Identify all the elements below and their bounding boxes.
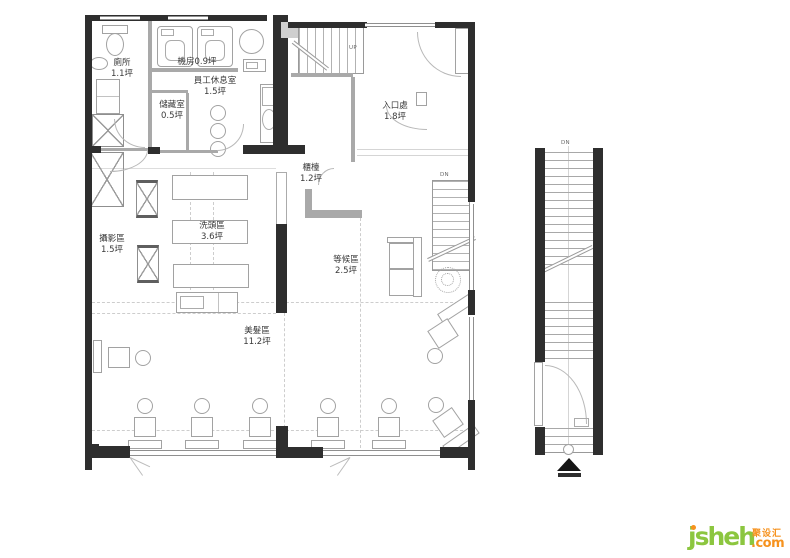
water-heater bbox=[239, 29, 264, 54]
wall-left bbox=[85, 15, 92, 470]
window bbox=[168, 16, 208, 20]
wall-right bbox=[468, 22, 475, 202]
reception-counter-wall bbox=[305, 210, 362, 218]
room-label-shampoo-area: 洗頭區 3.6坪 bbox=[199, 221, 225, 244]
shampoo-bed bbox=[172, 175, 248, 200]
mirror-counter bbox=[185, 440, 219, 449]
room-area: 3.6坪 bbox=[199, 232, 225, 243]
room-area: 0.5坪 bbox=[159, 111, 185, 122]
styling-chair bbox=[249, 417, 271, 437]
room-area: 1.5坪 bbox=[194, 87, 237, 98]
room-name: 入口處 bbox=[382, 101, 408, 112]
wall-right bbox=[468, 290, 475, 315]
room-label-waiting-area: 等候區 2.5坪 bbox=[333, 255, 359, 278]
mirror-counter bbox=[243, 440, 277, 449]
island-cabinet-line bbox=[218, 293, 219, 312]
room-label-machine-room: 機房0.9坪 bbox=[177, 57, 216, 68]
styling-chair bbox=[427, 318, 459, 349]
wall-segment bbox=[148, 15, 152, 148]
electrical-box-detail bbox=[246, 62, 258, 69]
styling-stool bbox=[194, 398, 210, 414]
wall-top bbox=[288, 22, 367, 28]
window bbox=[100, 16, 140, 20]
room-area: 0.9坪 bbox=[194, 57, 216, 67]
sofa-back bbox=[413, 237, 422, 297]
step-line bbox=[357, 149, 468, 150]
styling-chair bbox=[108, 347, 130, 368]
wall-pier bbox=[98, 446, 130, 458]
room-area: 1.8坪 bbox=[382, 112, 408, 123]
room-label-toilet: 廁所 1.1坪 bbox=[111, 58, 133, 81]
dashed-guide-line bbox=[360, 218, 361, 448]
room-area: 11.2坪 bbox=[243, 337, 270, 348]
mirror-counter bbox=[93, 340, 102, 373]
door-swing bbox=[417, 32, 461, 77]
stool bbox=[210, 105, 226, 121]
styling-stool bbox=[252, 398, 268, 414]
room-name: 等候區 bbox=[333, 255, 359, 266]
room-name: 員工休息室 bbox=[194, 76, 237, 87]
photo-backdrop-stand bbox=[136, 180, 158, 218]
wall-right bbox=[468, 400, 475, 470]
room-name: 櫃檯 bbox=[300, 163, 322, 174]
room-label-storage: 儲藏室 0.5坪 bbox=[159, 100, 185, 123]
wall-partition bbox=[276, 224, 287, 313]
toilet-bowl bbox=[106, 33, 124, 56]
wall-segment bbox=[291, 73, 353, 77]
sofa-seat bbox=[389, 269, 414, 296]
door-stop bbox=[574, 418, 589, 427]
wall-segment bbox=[152, 90, 188, 93]
wall-segment bbox=[351, 77, 355, 162]
room-name: 機房 bbox=[177, 57, 194, 67]
arrow-base-bar bbox=[558, 473, 581, 477]
sofa-seat bbox=[389, 243, 414, 269]
styling-stool bbox=[428, 397, 444, 413]
room-area: 1.5坪 bbox=[99, 245, 125, 256]
room-name: 廁所 bbox=[111, 58, 133, 69]
styling-chair bbox=[317, 417, 339, 437]
logo-j-dot bbox=[691, 525, 696, 530]
door-swing bbox=[217, 124, 244, 151]
stair-treads bbox=[545, 302, 593, 364]
plant-inner bbox=[441, 273, 454, 286]
logo-tld-text: .com bbox=[751, 536, 784, 551]
stair-start-marker bbox=[563, 444, 574, 455]
partition-column bbox=[276, 172, 287, 225]
washing-machine-panel bbox=[201, 29, 214, 36]
mirror-counter bbox=[372, 440, 406, 449]
step-line bbox=[357, 155, 468, 156]
stair-wall-left bbox=[535, 427, 545, 455]
stair-up-label: UP bbox=[349, 45, 357, 51]
room-name: 美髮區 bbox=[243, 326, 270, 337]
wall-pier bbox=[276, 447, 323, 458]
room-area: 1.2坪 bbox=[300, 174, 322, 185]
room-label-photo-area: 攝影區 1.5坪 bbox=[99, 234, 125, 257]
stair-down-label: DN bbox=[440, 172, 449, 178]
stair-wall-left bbox=[535, 148, 545, 362]
shampoo-bed bbox=[173, 264, 249, 288]
wall-segment bbox=[243, 145, 305, 154]
styling-chair bbox=[134, 417, 156, 437]
washbasin bbox=[90, 57, 108, 70]
styling-stool bbox=[137, 398, 153, 414]
styling-stool bbox=[320, 398, 336, 414]
wall-pier bbox=[440, 447, 475, 458]
stair-wall-right bbox=[593, 148, 603, 455]
wall-segment bbox=[186, 93, 189, 150]
room-area: 1.1坪 bbox=[111, 69, 133, 80]
room-label-hair-area: 美髮區 11.2坪 bbox=[243, 326, 270, 349]
wall-segment bbox=[160, 150, 218, 153]
styling-stool bbox=[381, 398, 397, 414]
door-swing bbox=[545, 365, 587, 424]
styling-stool bbox=[135, 350, 151, 366]
window bbox=[469, 204, 474, 290]
washing-machine-panel bbox=[161, 29, 174, 36]
island-cabinet-detail bbox=[180, 296, 204, 309]
room-name: 儲藏室 bbox=[159, 100, 185, 111]
mirror-counter bbox=[128, 440, 162, 449]
room-label-counter: 櫃檯 1.2坪 bbox=[300, 163, 322, 186]
room-area: 2.5坪 bbox=[333, 266, 359, 277]
wall-segment bbox=[85, 146, 101, 153]
door-leaf-box bbox=[416, 92, 427, 106]
window bbox=[469, 317, 474, 400]
styling-chair bbox=[191, 417, 213, 437]
photo-backdrop-stand bbox=[137, 245, 159, 283]
north-entry-arrow bbox=[557, 458, 581, 471]
dashed-guide-line bbox=[92, 313, 276, 314]
cabinet-detail-line bbox=[97, 96, 119, 97]
room-label-entrance: 入口處 1.8坪 bbox=[382, 101, 408, 124]
logo-brand-text: jsheh bbox=[688, 524, 754, 549]
room-name: 攝影區 bbox=[99, 234, 125, 245]
wall-segment bbox=[152, 68, 238, 72]
site-logo: jsheh 聚设汇 .com bbox=[688, 524, 790, 558]
room-name: 洗頭區 bbox=[199, 221, 225, 232]
window bbox=[365, 23, 435, 27]
room-label-staff-lounge: 員工休息室 1.5坪 bbox=[194, 76, 237, 99]
door-leaf bbox=[534, 362, 543, 426]
styling-chair bbox=[378, 417, 400, 437]
styling-stool bbox=[427, 348, 443, 364]
wall-pier bbox=[85, 444, 99, 458]
wall-segment bbox=[148, 147, 160, 154]
floor-plan: 廁所 1.1坪 機房0.9坪 員工休息室 1.5坪 儲藏室 0.5坪 入口處 1… bbox=[0, 0, 790, 558]
